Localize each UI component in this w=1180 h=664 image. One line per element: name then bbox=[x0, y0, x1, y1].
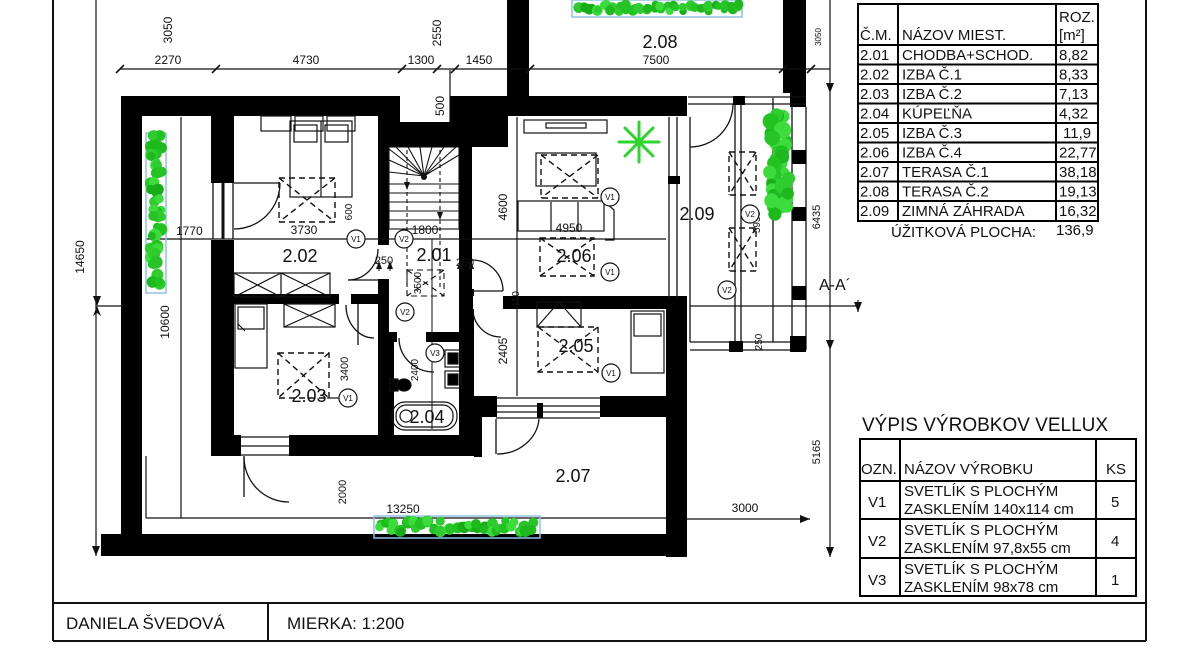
svg-text:4600: 4600 bbox=[496, 193, 510, 220]
svg-text:600: 600 bbox=[344, 203, 355, 220]
svg-text:Č.M.: Č.M. bbox=[860, 27, 892, 44]
svg-text:V3: V3 bbox=[430, 349, 440, 358]
svg-text:ÚŽITKOVÁ PLOCHA:: ÚŽITKOVÁ PLOCHA: bbox=[891, 224, 1036, 241]
svg-text:V1: V1 bbox=[606, 369, 616, 378]
svg-text:2.09: 2.09 bbox=[679, 204, 714, 224]
svg-text:V3: V3 bbox=[868, 572, 886, 589]
svg-text:2.02: 2.02 bbox=[860, 67, 889, 84]
svg-text:250: 250 bbox=[456, 257, 474, 269]
svg-text:V1: V1 bbox=[868, 494, 886, 511]
svg-text:2.01: 2.01 bbox=[416, 245, 451, 265]
svg-text:V1: V1 bbox=[605, 268, 615, 277]
svg-text:2.08: 2.08 bbox=[860, 184, 889, 201]
svg-text:38,18: 38,18 bbox=[1059, 164, 1097, 181]
svg-text:IZBA Č.2: IZBA Č.2 bbox=[902, 86, 962, 103]
svg-text:KÚPEĽŇA: KÚPEĽŇA bbox=[902, 106, 972, 123]
svg-text:V2: V2 bbox=[745, 210, 755, 219]
svg-text:OZN.: OZN. bbox=[861, 461, 897, 478]
svg-text:2.05: 2.05 bbox=[860, 125, 889, 142]
svg-text:2.04: 2.04 bbox=[860, 106, 889, 123]
svg-text:11,9: 11,9 bbox=[1063, 125, 1091, 142]
svg-text:3730: 3730 bbox=[291, 223, 318, 237]
svg-text:136,9: 136,9 bbox=[1056, 222, 1094, 239]
svg-text:2.08: 2.08 bbox=[642, 32, 677, 52]
svg-text:5165: 5165 bbox=[811, 440, 823, 464]
svg-text:4950: 4950 bbox=[556, 221, 583, 235]
svg-text:8,33: 8,33 bbox=[1059, 67, 1088, 84]
svg-text:IZBA Č.1: IZBA Č.1 bbox=[902, 67, 962, 84]
svg-text:2400: 2400 bbox=[410, 358, 421, 381]
svg-text:NÁZOV MIEST.: NÁZOV MIEST. bbox=[902, 27, 1006, 44]
svg-text:7500: 7500 bbox=[643, 53, 670, 67]
svg-text:CHODBA+SCHOD.: CHODBA+SCHOD. bbox=[902, 47, 1033, 64]
svg-text:ZASKLENÍM 140x114 cm: ZASKLENÍM 140x114 cm bbox=[904, 501, 1074, 518]
svg-text:V1: V1 bbox=[351, 235, 361, 244]
svg-text:14650: 14650 bbox=[73, 240, 87, 274]
svg-text:V1: V1 bbox=[605, 193, 615, 202]
svg-text:4730: 4730 bbox=[293, 53, 320, 67]
svg-text:SVETLÍK S PLOCHÝM: SVETLÍK S PLOCHÝM bbox=[904, 522, 1058, 539]
svg-text:2.03: 2.03 bbox=[860, 86, 889, 103]
svg-text:5: 5 bbox=[1111, 494, 1119, 511]
svg-text:500: 500 bbox=[433, 96, 447, 116]
svg-text:1770: 1770 bbox=[176, 224, 203, 238]
svg-text:[m²]: [m²] bbox=[1059, 27, 1085, 44]
svg-text:13250: 13250 bbox=[386, 502, 420, 516]
svg-text:V2: V2 bbox=[400, 308, 410, 317]
svg-text:2.07: 2.07 bbox=[555, 466, 590, 486]
svg-text:1: 1 bbox=[1111, 572, 1119, 589]
svg-text:6435: 6435 bbox=[811, 205, 823, 229]
svg-text:2.03: 2.03 bbox=[291, 386, 326, 406]
svg-text:1300: 1300 bbox=[408, 53, 435, 67]
svg-text:2.04: 2.04 bbox=[409, 407, 444, 427]
svg-text:DANIELA ŠVEDOVÁ: DANIELA ŠVEDOVÁ bbox=[66, 614, 225, 633]
svg-text:NÁZOV VÝROBKU: NÁZOV VÝROBKU bbox=[904, 461, 1033, 478]
svg-text:2.01: 2.01 bbox=[860, 47, 889, 64]
svg-text:V2: V2 bbox=[399, 235, 409, 244]
svg-text:2.02: 2.02 bbox=[282, 246, 317, 266]
svg-text:22,77: 22,77 bbox=[1059, 145, 1097, 162]
svg-text:V2: V2 bbox=[868, 533, 886, 550]
svg-text:1450: 1450 bbox=[466, 53, 493, 67]
svg-text:ROZ.: ROZ. bbox=[1059, 9, 1095, 26]
svg-text:2270: 2270 bbox=[155, 53, 182, 67]
svg-text:3050: 3050 bbox=[161, 16, 175, 43]
svg-text:2.09: 2.09 bbox=[860, 203, 889, 220]
svg-text:2405: 2405 bbox=[496, 337, 510, 364]
svg-text:16,32: 16,32 bbox=[1059, 203, 1097, 220]
svg-text:IZBA Č.3: IZBA Č.3 bbox=[902, 125, 962, 142]
svg-text:VÝPIS VÝROBKOV VELLUX: VÝPIS VÝROBKOV VELLUX bbox=[862, 415, 1108, 436]
svg-text:3050: 3050 bbox=[814, 28, 823, 46]
svg-text:TERASA Č.2: TERASA Č.2 bbox=[902, 184, 989, 201]
svg-text:1800: 1800 bbox=[412, 223, 439, 237]
svg-text:2550: 2550 bbox=[430, 19, 444, 46]
svg-text:3000: 3000 bbox=[732, 501, 759, 515]
svg-text:SVETLÍK S PLOCHÝM: SVETLÍK S PLOCHÝM bbox=[904, 483, 1058, 500]
svg-text:MIERKA: 1:200: MIERKA: 1:200 bbox=[287, 614, 404, 633]
svg-text:V2: V2 bbox=[722, 286, 732, 295]
svg-text:A-A´: A-A´ bbox=[819, 277, 851, 294]
svg-text:2.06: 2.06 bbox=[556, 246, 591, 266]
svg-text:250: 250 bbox=[754, 333, 765, 350]
svg-text:KS: KS bbox=[1106, 461, 1126, 478]
svg-text:SVETLÍK S PLOCHÝM: SVETLÍK S PLOCHÝM bbox=[904, 561, 1058, 578]
svg-text:2000: 2000 bbox=[337, 480, 349, 504]
svg-text:ZASKLENÍM 98x78 cm: ZASKLENÍM 98x78 cm bbox=[904, 579, 1058, 596]
svg-text:19,13: 19,13 bbox=[1059, 184, 1097, 201]
svg-text:2.06: 2.06 bbox=[860, 145, 889, 162]
svg-text:2.07: 2.07 bbox=[860, 164, 889, 181]
svg-text:110: 110 bbox=[511, 291, 522, 307]
svg-text:ZIMNÁ ZÁHRADA: ZIMNÁ ZÁHRADA bbox=[902, 203, 1025, 220]
svg-text:TERASA Č.1: TERASA Č.1 bbox=[902, 164, 989, 181]
svg-text:IZBA Č.4: IZBA Č.4 bbox=[902, 145, 962, 162]
svg-text:10600: 10600 bbox=[158, 305, 172, 339]
svg-text:4,32: 4,32 bbox=[1059, 106, 1088, 123]
svg-text:8,82: 8,82 bbox=[1059, 47, 1088, 64]
svg-text:4: 4 bbox=[1111, 533, 1119, 550]
svg-text:3400: 3400 bbox=[339, 357, 351, 381]
svg-text:7,13: 7,13 bbox=[1059, 86, 1088, 103]
svg-text:V1: V1 bbox=[343, 394, 353, 403]
svg-text:ZASKLENÍM 97,8x55 cm: ZASKLENÍM 97,8x55 cm bbox=[904, 540, 1071, 557]
